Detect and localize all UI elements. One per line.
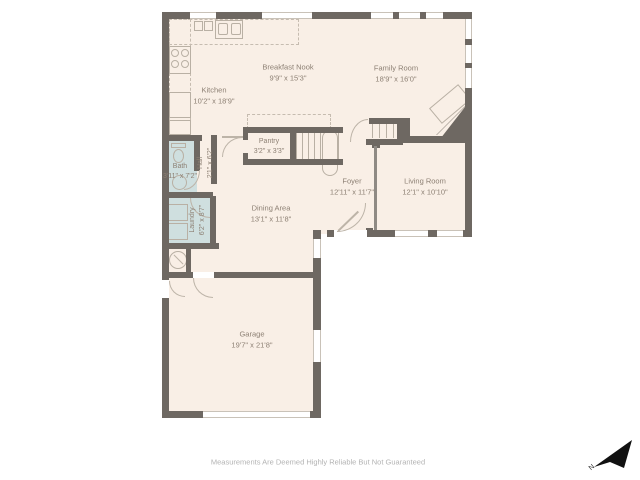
wall-pantry-west-stub-top [243, 133, 248, 140]
dryer [168, 223, 188, 240]
room-dims: 6'2" x 8'7" [198, 205, 208, 236]
room-name: Family Room [374, 64, 418, 75]
wall-frontdoor-stub [366, 228, 373, 237]
room-dims: 9'9" x 15'3" [262, 73, 313, 84]
room-label-garage: Garage 19'7" x 21'8" [231, 330, 272, 351]
window-garage-side-2 [313, 330, 321, 362]
window-family-right-3 [465, 68, 472, 88]
stove-burner-1 [171, 49, 179, 57]
wall-foyer-living-divider [374, 146, 377, 230]
north-arrow: N [588, 436, 634, 477]
wall-left [162, 12, 169, 418]
room-dims: 18'9" x 16'0" [374, 74, 418, 85]
room-label-dining-area: Dining Area 13'1" x 11'8" [251, 204, 292, 225]
window-family-3 [426, 12, 443, 19]
room-name: Foyer [330, 177, 374, 188]
room-name: Hall [196, 148, 206, 179]
kitchen-cabinet-2 [169, 120, 191, 135]
disclaimer-text: Measurements Are Deemed Highly Reliable … [211, 458, 425, 467]
north-arrow-icon: N [588, 436, 634, 472]
kitchen-sink-basin-left [218, 23, 228, 35]
room-label-family-room: Family Room 18'9" x 16'0" [374, 64, 418, 85]
room-dims: 10'2" x 18'9" [193, 96, 234, 107]
room-dims: 12'11" x 11'7" [330, 187, 374, 198]
room-dims: 12'1" x 10'10" [402, 187, 447, 198]
window-kitchen [190, 12, 216, 19]
stove-burner-2 [181, 49, 189, 57]
room-name: Living Room [402, 177, 447, 188]
room-dims: 3'11" x 7'2" [163, 172, 197, 182]
wall-stairs-south [243, 159, 343, 165]
room-dims: 19'7" x 21'8" [231, 340, 272, 351]
room-label-pantry: Pantry 3'2" x 3'3" [254, 137, 285, 157]
window-living-1 [395, 230, 428, 237]
window-family-right-2 [465, 45, 472, 63]
kitchen-appliance-left [194, 21, 203, 31]
window-family-right-1 [465, 19, 472, 39]
wall-wing-right [313, 230, 321, 418]
wall-utility-closet-east [186, 249, 191, 274]
room-label-foyer: Foyer 12'11" x 11'7" [330, 177, 374, 198]
opening-garage-side-door [162, 280, 169, 298]
kitchen-cabinet-1 [169, 92, 191, 118]
room-label-kitchen: Kitchen 10'2" x 18'9" [193, 86, 234, 107]
kitchen-appliance-right [204, 21, 213, 31]
stair-curved-end [322, 130, 338, 176]
toilet-tank [171, 143, 186, 148]
wall-pantry-west-stub-bottom [243, 153, 248, 165]
window-family-2 [399, 12, 420, 19]
wall-livingroom-notch-h [400, 136, 443, 143]
room-name: Dining Area [251, 204, 292, 215]
room-dims: 3'2" x 3'3" [254, 147, 285, 157]
pantry-door-leaf [222, 136, 243, 138]
wall-pantry-east [290, 133, 296, 159]
room-label-living-room: Living Room 12'1" x 10'10" [402, 177, 447, 198]
room-label-hall: Hall 2'1" x 6'2" [196, 148, 216, 179]
kitchen-sink-basin-right [231, 23, 241, 35]
room-dims: 2'1" x 6'2" [206, 148, 216, 179]
wall-laundry-east [210, 196, 216, 246]
room-dims: 13'1" x 11'8" [251, 214, 292, 225]
room-label-laundry: Laundry 6'2" x 8'7" [188, 205, 208, 236]
slider-breakfast-nook [262, 12, 312, 19]
room-label-bath: Bath 3'11" x 7'2" [163, 162, 197, 182]
window-garage-side-1 [313, 239, 321, 258]
room-name: Bath [163, 162, 197, 172]
wall-garage-north [162, 272, 321, 278]
window-family-1 [371, 12, 393, 19]
north-label: N [588, 463, 596, 472]
garage-door [203, 411, 310, 418]
stove-burner-3 [171, 60, 179, 68]
washer [168, 204, 188, 221]
opening-hall-dining [211, 184, 217, 192]
room-name: Laundry [188, 205, 198, 236]
room-name: Pantry [254, 137, 285, 147]
stove-burner-4 [181, 60, 189, 68]
window-living-2 [437, 230, 463, 237]
room-label-breakfast-nook: Breakfast Nook 9'9" x 15'3" [262, 63, 313, 84]
floor-plan: Kitchen 10'2" x 18'9" Breakfast Nook 9'9… [0, 0, 640, 480]
room-name: Breakfast Nook [262, 63, 313, 74]
toilet-bowl [173, 149, 184, 163]
room-name: Kitchen [193, 86, 234, 97]
room-name: Garage [231, 330, 272, 341]
